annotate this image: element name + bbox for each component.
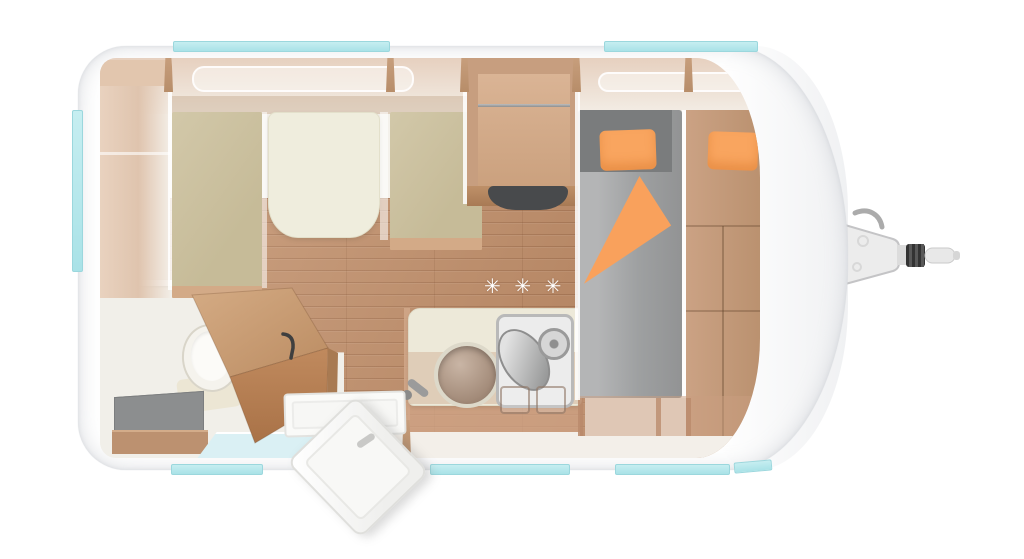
wall-line [380, 112, 388, 240]
round-sink [434, 342, 500, 408]
bench-seat-left-edge [172, 286, 262, 298]
window-strip-rear [72, 110, 83, 272]
wall-line [575, 58, 580, 400]
stove-burner [538, 328, 570, 360]
pillow-left [599, 129, 656, 171]
bench-floor-strip [578, 436, 760, 458]
window-strip-bottom-mid [430, 464, 570, 475]
roof-skylight-rear [192, 66, 414, 92]
window-strip-bottom-rear [171, 464, 263, 475]
wall-stud [164, 58, 173, 92]
caravan-interior: ✳ ✳ ✳ [100, 58, 760, 458]
wall-stud [460, 58, 469, 92]
caravan-floorplan: ✳ ✳ ✳ [0, 0, 1024, 559]
hitch-coupling-body [841, 225, 899, 284]
heating-vent-symbols: ✳ ✳ ✳ [484, 274, 594, 304]
wardrobe-shelf-line [686, 225, 760, 227]
pillow-right [707, 131, 758, 171]
hitch-coupler-tip [925, 248, 955, 263]
wall-line [262, 112, 267, 288]
wardrobe-shelf-line [686, 310, 760, 312]
hob-burner-left [500, 386, 530, 414]
bench-seat-left [172, 112, 262, 288]
cabinet-open-shelf [478, 74, 570, 186]
sideboard-cabinet [100, 60, 170, 86]
window-strip-bottom-front [615, 464, 730, 475]
wall-stud [750, 58, 759, 92]
dark-appliance [488, 186, 568, 210]
step-stool-front [112, 430, 208, 454]
toilet-lid [188, 329, 233, 383]
sideboard [100, 60, 170, 298]
wall-stud [684, 58, 693, 92]
cabinet-rail [478, 104, 570, 107]
bed-bench [578, 396, 760, 436]
sideboard-shelf-line [100, 152, 170, 155]
wall-stud [572, 58, 581, 92]
wall-line [168, 58, 172, 290]
roof-skylight-front [598, 72, 754, 92]
tow-hitch [833, 203, 963, 303]
window-strip-top-front [604, 41, 758, 52]
window-strip-bottom-corner [734, 459, 773, 473]
hitch-handle [855, 211, 882, 227]
dinette-table [268, 112, 380, 238]
hob-burner-right [536, 386, 566, 414]
window-strip-top-rear [173, 41, 390, 52]
wall-stud [386, 58, 395, 92]
bench-seat-right-edge [390, 238, 482, 250]
